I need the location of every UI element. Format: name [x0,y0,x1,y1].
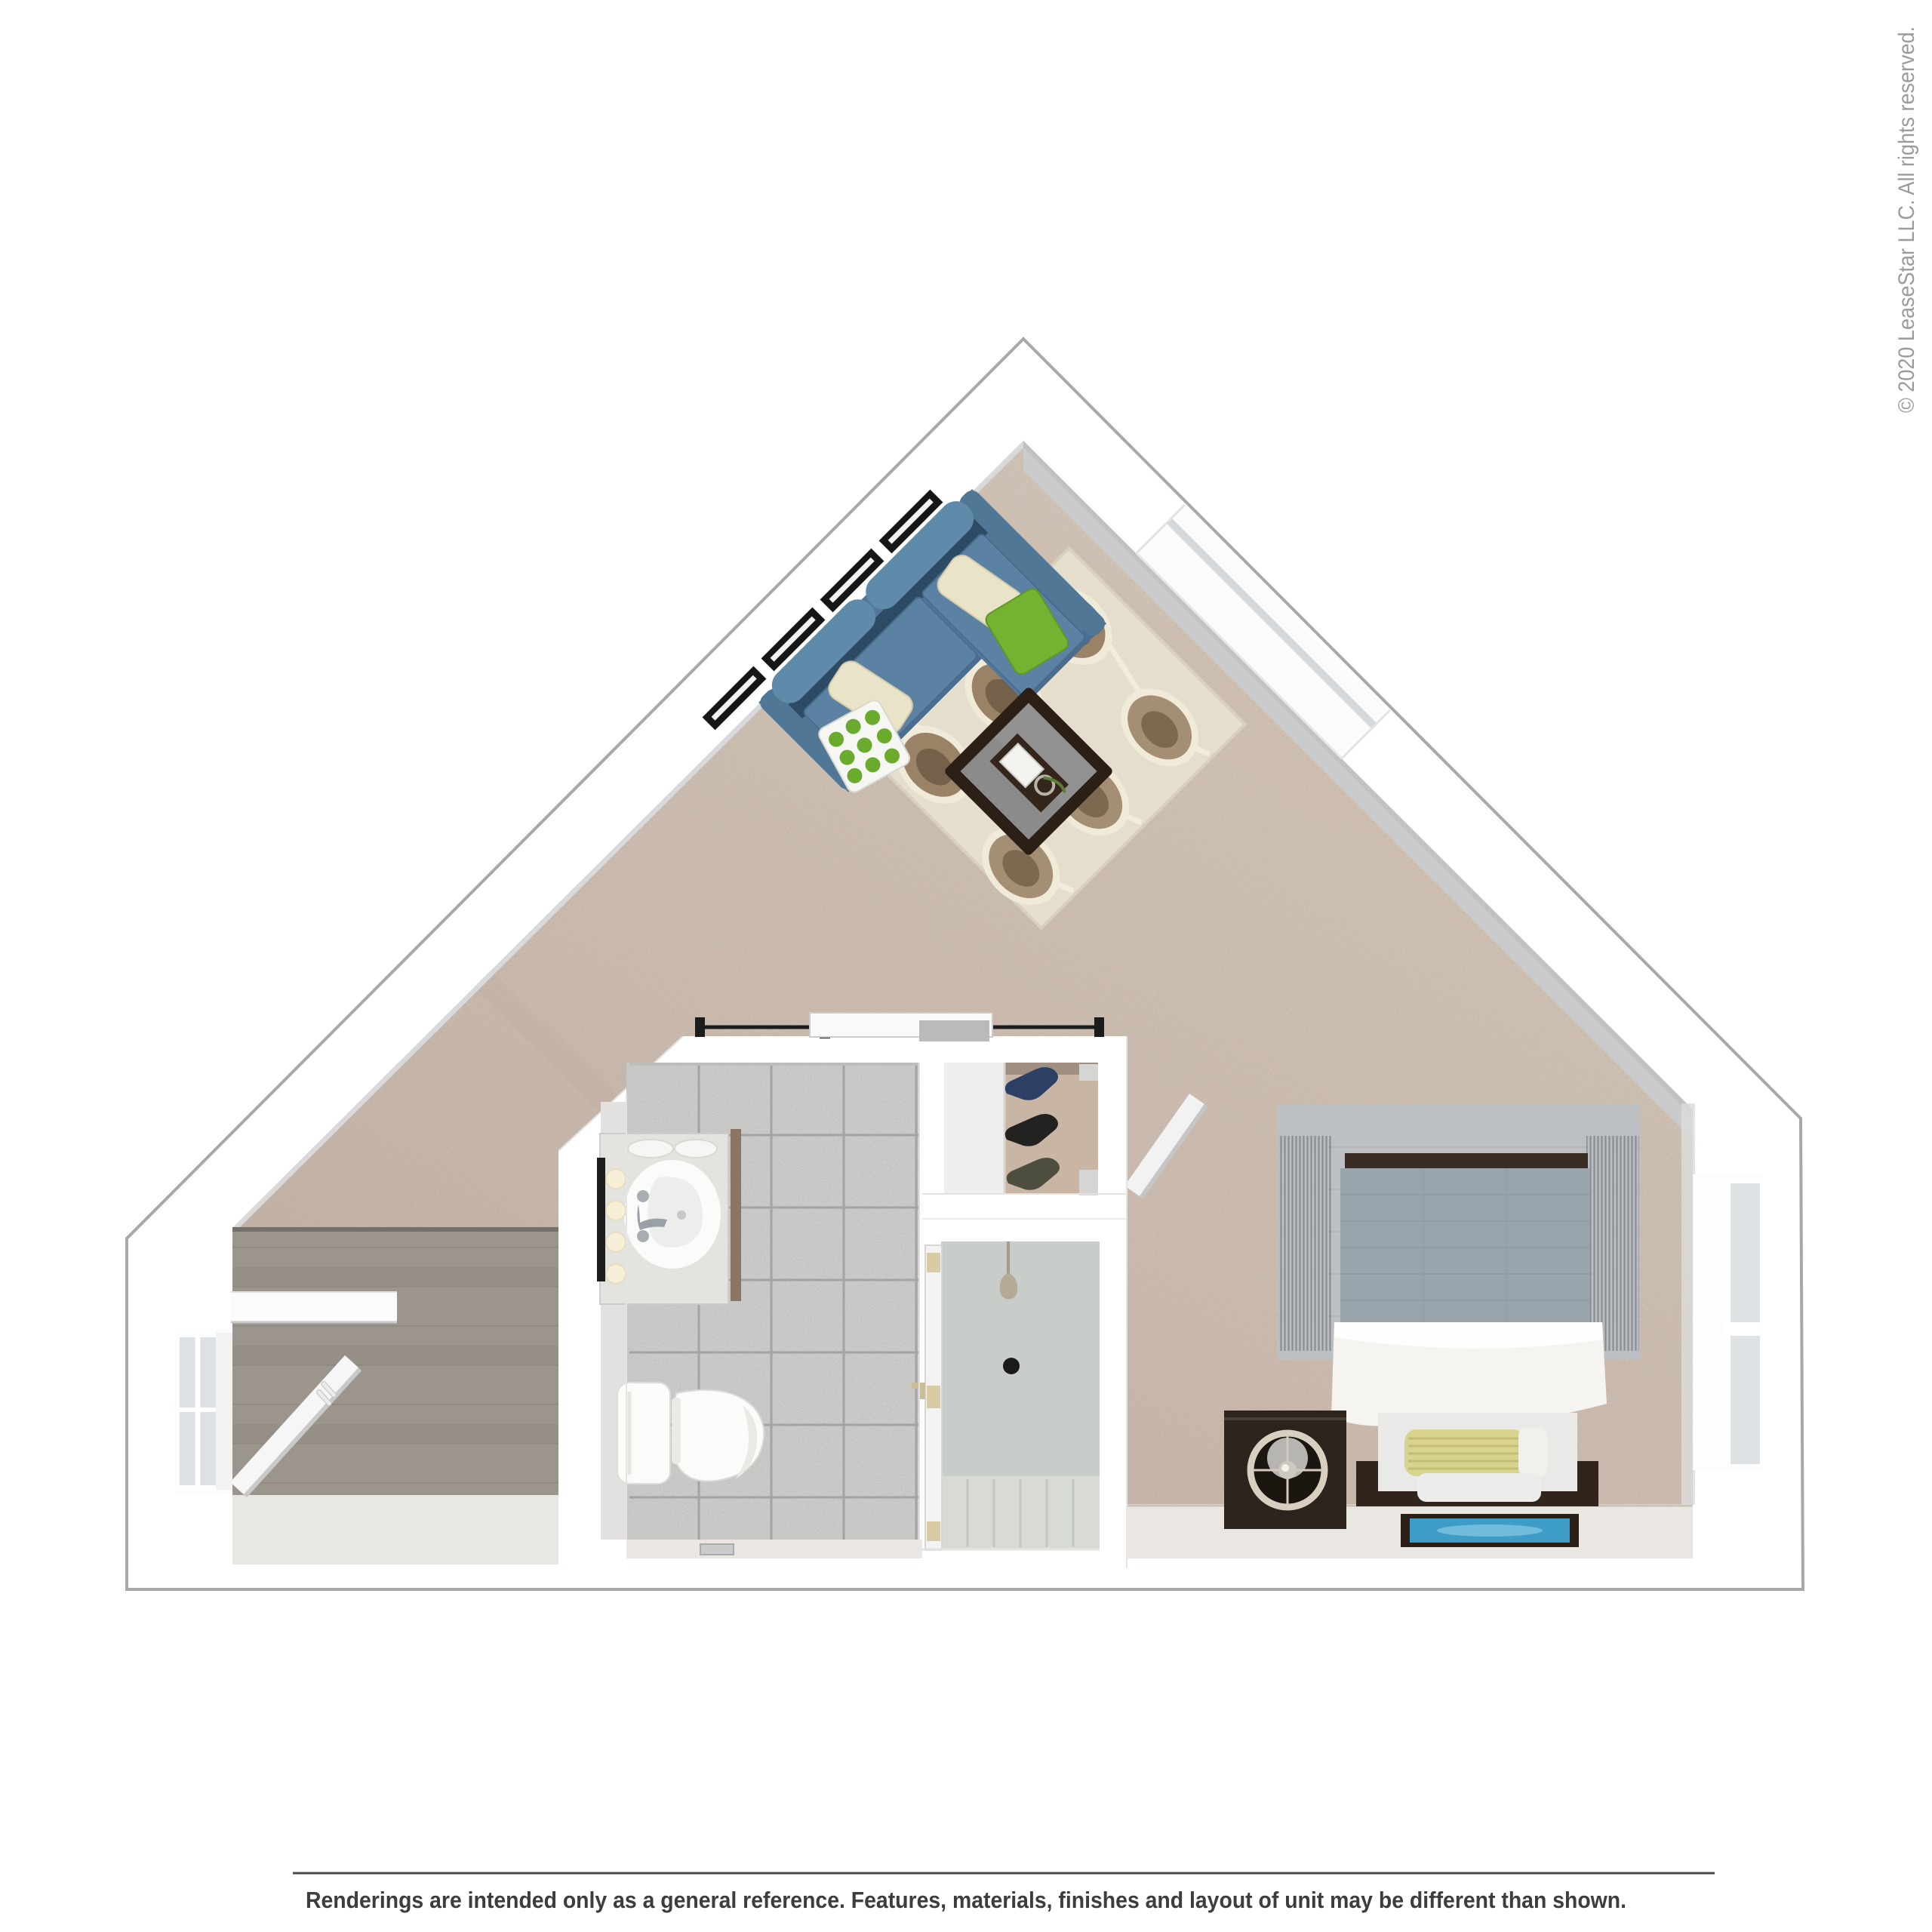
svg-text:© 2020 LeaseStar LLC. All righ: © 2020 LeaseStar LLC. All rights reserve… [1894,26,1919,413]
svg-text:Renderings are intended only a: Renderings are intended only as a genera… [306,1887,1626,1913]
